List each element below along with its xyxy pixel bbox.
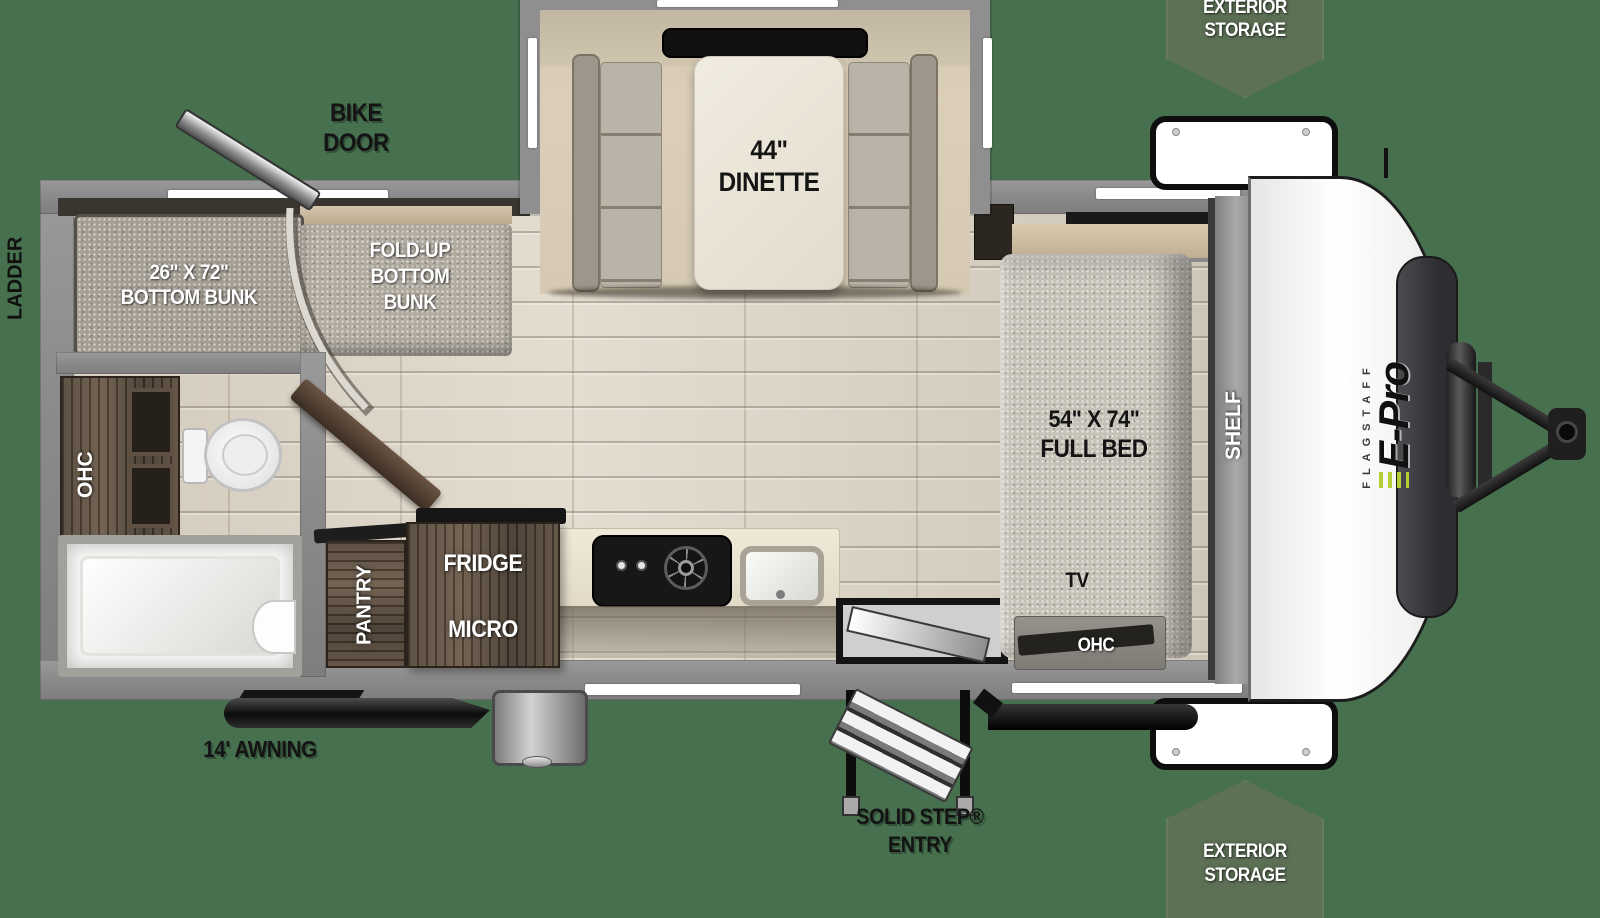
epro-logo-stripes [1379, 472, 1409, 488]
foldup-bunk-label-2: BOTTOM [338, 266, 482, 288]
floorplan-canvas: EXTERIOR STORAGE EXTERIOR STORAGE 26" X … [0, 0, 1600, 918]
bottom-bunk-label: BOTTOM BUNK [90, 287, 288, 309]
bed-size-label: 54" X 74" [1017, 408, 1172, 433]
bath-cabinet-panel-upper [128, 388, 174, 456]
toilet-seat [222, 434, 268, 476]
ladder-label: LADDER [0, 220, 32, 336]
storage-door-top-screw-left [1172, 128, 1180, 136]
storage-door-top-screw-right [1302, 128, 1310, 136]
water-heater-vent [522, 756, 552, 768]
foldup-bunk-label-3: BUNK [338, 292, 482, 314]
foldup-bunk-label-1: FOLD-UP [338, 240, 482, 262]
dinette-window-top [657, 0, 838, 7]
badge-top-line1: EXTERIOR [1174, 0, 1316, 18]
cooktop [592, 535, 732, 607]
dinette-rear-window [662, 28, 868, 58]
burner-center [678, 560, 694, 576]
bottom-bunk-size-label: 26" X 72" [108, 262, 270, 284]
badge-top-line2: STORAGE [1174, 21, 1316, 41]
bath-ohc-label: OHC [66, 418, 106, 532]
sink-faucet [776, 590, 785, 599]
dinette-window-left [528, 38, 537, 148]
bike-door-label-2: DOOR [306, 130, 407, 156]
dinette-bench-right-back [910, 54, 938, 292]
brand-logo: FLAGSTAFF E-Pro [1355, 305, 1421, 545]
awning-tube [224, 698, 490, 728]
bed-head-trim [1066, 212, 1212, 224]
hitch-coupler-ball [1556, 421, 1578, 443]
bike-door-label-1: BIKE [306, 100, 407, 126]
exterior-storage-badge-top: EXTERIOR STORAGE [1166, 0, 1324, 98]
shelf-label: SHELF [1216, 368, 1252, 484]
micro-label: MICRO [420, 618, 546, 643]
bath-wall-top [56, 352, 308, 374]
pantry-label: PANTRY [344, 546, 386, 664]
entry-label-2: ENTRY [837, 834, 1003, 857]
bed-ohc-label: OHC [1060, 636, 1132, 656]
front-cap-antenna [1384, 148, 1388, 178]
frame-bar-front [988, 704, 1198, 730]
shower-faucet [252, 600, 296, 654]
shower-inner-line [80, 556, 280, 656]
bed-label: FULL BED [1017, 436, 1172, 462]
dinette-window-right [983, 38, 992, 148]
entry-label-1: SOLID STEP® [837, 806, 1003, 829]
brand-model: E-Pro [1373, 362, 1415, 469]
dinette-bench-right-seat [848, 62, 910, 288]
badge-bottom-line1: EXTERIOR [1174, 842, 1316, 862]
fridge-micro-cabinet [406, 522, 560, 668]
stove-knob-2 [636, 560, 647, 571]
window-kitchen [585, 684, 800, 695]
badge-bottom-line2: STORAGE [1174, 866, 1316, 886]
awning-label: 14' AWNING [193, 738, 326, 762]
dinette-label: DINETTE [702, 168, 837, 196]
dinette-bench-left-back [572, 54, 600, 292]
shelf-edge [1208, 198, 1215, 680]
stove-knob-1 [616, 560, 627, 571]
water-heater [492, 690, 588, 766]
exterior-storage-badge-bottom: EXTERIOR STORAGE [1166, 780, 1324, 918]
storage-door-bottom-screw-right [1302, 748, 1310, 756]
fridge-label: FRIDGE [420, 552, 546, 577]
dinette-bench-left-seat [600, 62, 662, 288]
dinette-size-label: 44" [702, 136, 837, 164]
bath-cabinet-panel-lower [128, 464, 174, 528]
tv-label: TV [1041, 570, 1113, 592]
window-front-lower [1012, 683, 1242, 693]
storage-door-bottom-screw-left [1172, 748, 1180, 756]
counter-front-face [544, 606, 840, 658]
